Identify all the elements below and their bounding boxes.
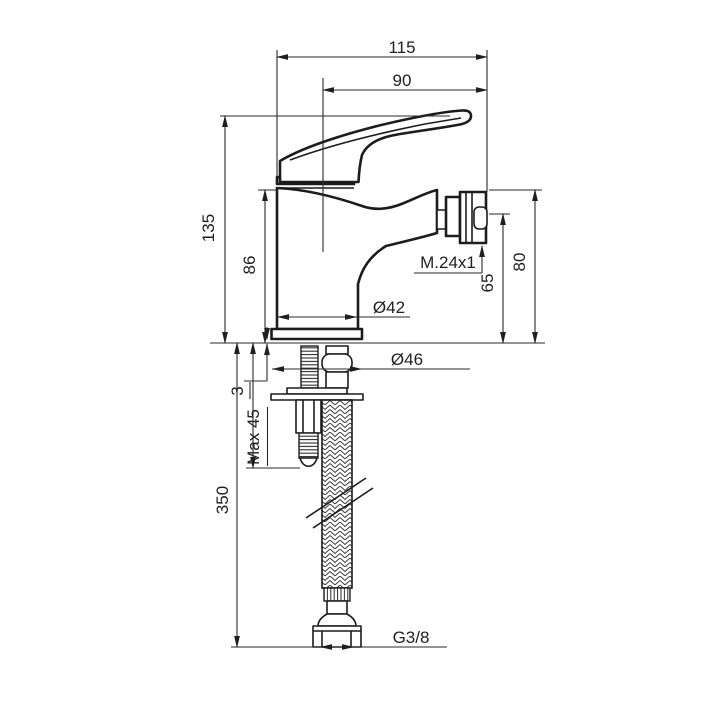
technical-drawing-page: 115 90 135 86 Ø42 Ø46 M.24x1 65 80 3 Max… — [0, 0, 720, 720]
hose-ferrule — [324, 588, 350, 601]
faucet-body-outline — [277, 188, 437, 329]
dim-label-thread-aerator: M.24x1 — [420, 253, 476, 272]
aerator-outlet-cap — [474, 207, 487, 229]
dim-label-dia-base: Ø46 — [391, 350, 423, 369]
hose-fitting-top — [326, 346, 348, 354]
dim-label-width-total: 115 — [388, 38, 415, 57]
dim-label-height-spout: 65 — [478, 274, 497, 293]
faucet-technical-drawing: 115 90 135 86 Ø42 Ø46 M.24x1 65 80 3 Max… — [0, 0, 720, 720]
dim-label-height-aerator: 80 — [510, 253, 529, 272]
aerator-neck — [437, 210, 446, 229]
dim-label-height-body: 86 — [240, 256, 259, 275]
aerator-ring-small — [446, 197, 460, 236]
mounting-nut — [296, 400, 321, 433]
connection-nut — [313, 626, 361, 647]
hose-fitting-cylinder — [326, 372, 348, 388]
dim-label-gasket: 3 — [228, 386, 247, 395]
washer-small — [287, 388, 347, 394]
dim-label-width-handle: 90 — [393, 71, 412, 90]
dim-label-hose-length: 350 — [213, 486, 232, 514]
mounting-stud-tip — [300, 458, 317, 466]
mounting-stud-thread-lower — [299, 433, 318, 458]
dim-label-connection: G3/8 — [393, 628, 430, 647]
hose-end-cylinder — [327, 601, 347, 614]
dim-label-height-total: 135 — [199, 214, 218, 242]
dim-label-deck-max: Max 45 — [244, 409, 263, 465]
reference-lines — [210, 343, 545, 647]
mounting-stud-thread-upper — [301, 346, 318, 388]
hose-end-bell — [318, 614, 356, 626]
braided-hose — [322, 400, 352, 588]
dim-label-dia-body: Ø42 — [373, 298, 405, 317]
base-flange — [272, 329, 363, 339]
washer-large — [271, 394, 363, 400]
faucet-body-group — [271, 110, 487, 647]
